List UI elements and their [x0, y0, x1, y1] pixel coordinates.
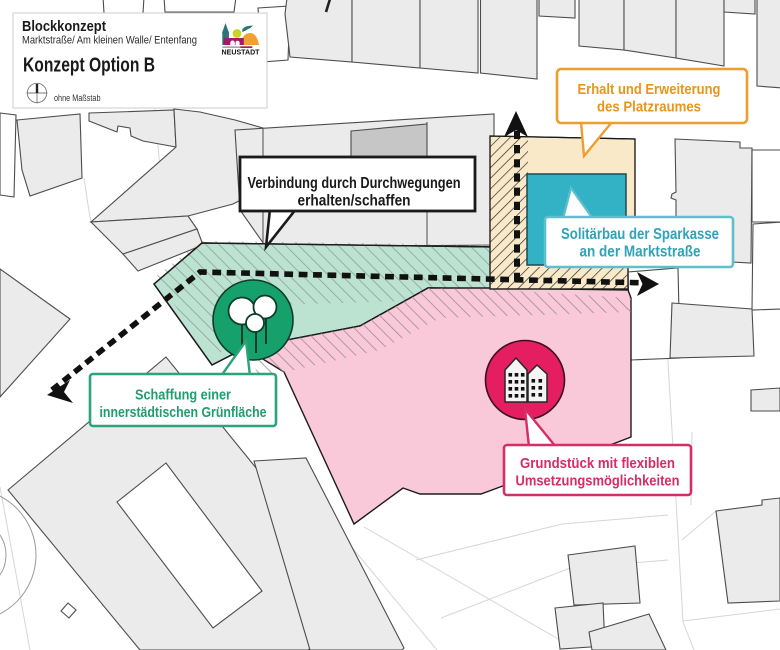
svg-text:Marktstraße/ Am kleinen Walle/: Marktstraße/ Am kleinen Walle/ Entenfang: [22, 35, 197, 47]
svg-text:des Platzraumes: des Platzraumes: [597, 99, 701, 116]
svg-text:Erhalt und Erweiterung: Erhalt und Erweiterung: [578, 81, 721, 98]
svg-text:Schaffung einer: Schaffung einer: [135, 387, 231, 404]
svg-text:an der Marktstraße: an der Marktstraße: [580, 244, 701, 261]
svg-text:NEUSTADT: NEUSTADT: [222, 50, 261, 57]
svg-text:Umsetzungsmöglichkeiten: Umsetzungsmöglichkeiten: [516, 473, 680, 490]
svg-text:ohne Maßstab: ohne Maßstab: [54, 93, 101, 103]
svg-text:Blockkonzept: Blockkonzept: [22, 19, 106, 35]
svg-text:Grundstück mit flexiblen: Grundstück mit flexiblen: [520, 455, 675, 472]
svg-text:erhalten/schaffen: erhalten/schaffen: [298, 193, 411, 210]
svg-text:Konzept Option B: Konzept Option B: [23, 55, 155, 77]
svg-text:Verbindung durch Durchwegungen: Verbindung durch Durchwegungen: [248, 175, 461, 192]
svg-text:innerstädtischen Grünfläche: innerstädtischen Grünfläche: [100, 404, 267, 421]
svg-text:Solitärbau der Sparkasse: Solitärbau der Sparkasse: [561, 226, 719, 243]
